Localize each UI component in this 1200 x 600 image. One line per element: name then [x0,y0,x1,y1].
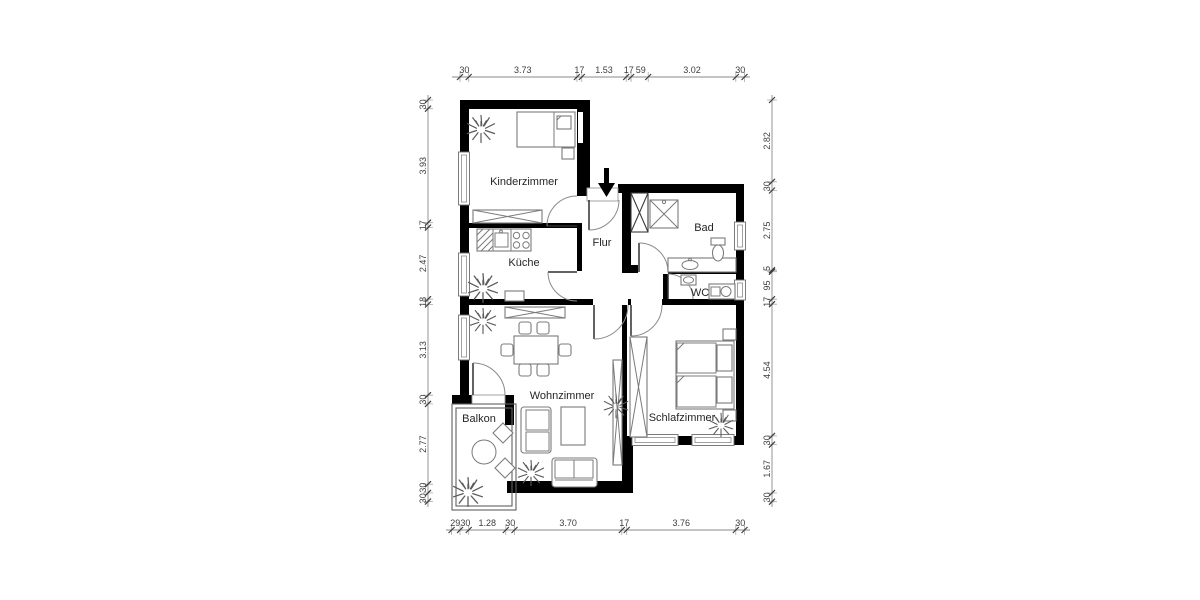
window-kinderzimmer [459,152,470,205]
wall-segment [622,265,638,273]
wall-segment [628,299,631,305]
dim-label: 18 [418,297,428,307]
wall-segment [460,100,469,152]
nightstand [723,329,736,340]
door-kueche [548,272,577,301]
wall-segment [460,205,469,253]
door-kinderzimmer [547,196,577,226]
plant-icon [454,478,483,507]
dim-label: 30 [459,65,469,75]
kitchen-counter [477,229,531,251]
dim-label: 30 [460,518,470,528]
balcony-chair [493,423,513,443]
dim-label: 3.70 [559,518,577,528]
wall-segment [577,226,582,271]
room-label-kinderzimmer: Kinderzimmer [490,176,558,188]
room-label-flur: Flur [593,237,612,249]
dim-label: 17 [762,297,772,307]
balcony-table [472,440,496,464]
dim-label: 30 [418,493,428,503]
wall-segment [618,184,744,193]
sofa [552,458,597,487]
wall-segment [622,193,631,265]
wall-segment [736,250,744,280]
dim-label: 3.13 [418,341,428,359]
dim-label: 3.93 [418,157,428,175]
window-bad [735,222,746,250]
dining-set [501,322,571,376]
wall-segment [622,305,627,436]
room-label-balkon: Balkon [462,413,496,425]
door-bad [639,243,668,272]
duct-shaft [631,193,648,232]
dim-label: 17 [418,220,428,230]
bed-schlafzimmer [676,341,734,409]
room-label-schlafzimmer: Schlafzimmer [649,412,716,424]
wall-segment [736,193,744,222]
entrance-door [589,200,619,230]
wall-segment [678,436,692,445]
door-schlafzimmer [631,305,662,336]
dim-label: 30 [418,99,428,109]
floor-plan-svg: Kinderzimmer Küche Flur Bad WC Wohnzimme… [0,0,1200,600]
dim-chain-top: 30 3.73 17 1.53 17 59 3.02 30 [452,65,750,82]
window-wohnzimmer [459,315,470,360]
wall-segment [734,436,744,445]
shower [650,200,678,228]
balcony-threshold [472,395,505,404]
plant-icon [469,274,498,303]
dim-label: 1.67 [762,460,772,478]
dim-label: 2.77 [418,435,428,453]
wall-niche [578,112,583,143]
washing-machine [709,284,735,299]
window-schlafzimmer-b [692,435,734,446]
dim-label: 95 [762,280,772,290]
dim-label: 4.54 [762,361,772,379]
dim-label: 1.28 [479,518,497,528]
dim-label: 30 [762,181,772,191]
room-label-bad: Bad [694,222,714,234]
room-label-wc: WC [691,287,709,299]
dim-label: 30 [418,483,428,493]
dim-label: 3.73 [514,65,532,75]
floor-plan-page: Kinderzimmer Küche Flur Bad WC Wohnzimme… [0,0,1200,600]
dim-label: 2.75 [762,222,772,240]
wall-segment [460,100,590,109]
toilet-bad [711,238,725,261]
dim-label: 1.53 [595,65,613,75]
wardrobe-schlafzimmer [630,337,647,437]
dim-chain-bottom: 29 30 1.28 30 3.70 17 3.76 30 [446,518,750,535]
window-kueche [459,253,470,296]
dim-label: 30 [762,435,772,445]
wall-segment [582,299,593,305]
kitchen-table [505,291,524,301]
dim-label: 3.76 [673,518,691,528]
dim-label: 30 [505,518,515,528]
bathroom-vanity [668,258,736,272]
dim-label: 29 [450,518,460,528]
dim-label: 2.82 [762,132,772,150]
plant-icon [468,116,495,143]
plant-icon [470,308,495,333]
wall-segment [736,300,744,436]
dim-chain-right: 2.82 30 2.75 5 95 17 4.54 30 1.67 30 [762,95,777,507]
dim-label: 17 [574,65,584,75]
dim-label: 30 [735,65,745,75]
wall-segment [505,395,514,425]
dim-label: 2.47 [418,255,428,273]
wall-segment [460,360,469,404]
loveseat [521,407,551,453]
coffee-table [561,407,585,445]
dim-label: 30 [735,518,745,528]
dim-label: 17 [619,518,629,528]
sideboard [505,307,565,318]
sink-wc [681,275,696,285]
dim-label: 17 [624,65,634,75]
wardrobe-kinderzimmer [473,210,542,223]
dim-label: 59 [636,65,646,75]
room-label-kueche: Küche [508,257,539,269]
door-balkon [473,363,505,395]
room-label-wohnzimmer: Wohnzimmer [530,390,595,402]
dim-label: 30 [762,492,772,502]
tv-board [613,360,622,465]
bed-kinderzimmer [517,112,575,159]
wall-segment [662,299,736,305]
dim-label: 5 [762,266,772,271]
window-wc [735,280,746,300]
dim-label: 3.02 [683,65,701,75]
dim-chain-left: 30 3.93 17 2.47 18 3.13 30 2.77 30 30 [418,95,433,507]
dim-label: 30 [418,395,428,405]
wall-segment [460,296,469,315]
